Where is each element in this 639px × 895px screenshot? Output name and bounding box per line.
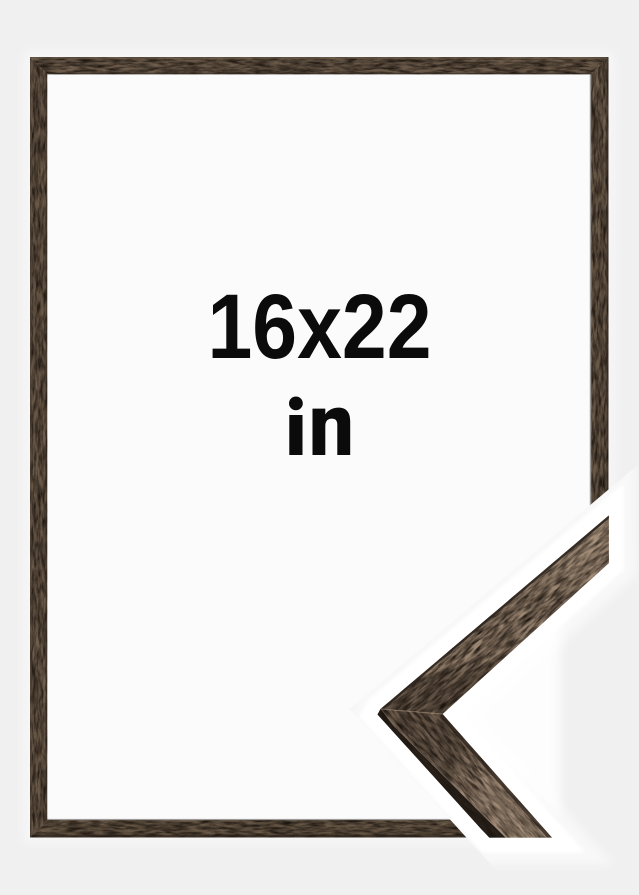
svg-text:16x22: 16x22	[208, 276, 432, 378]
